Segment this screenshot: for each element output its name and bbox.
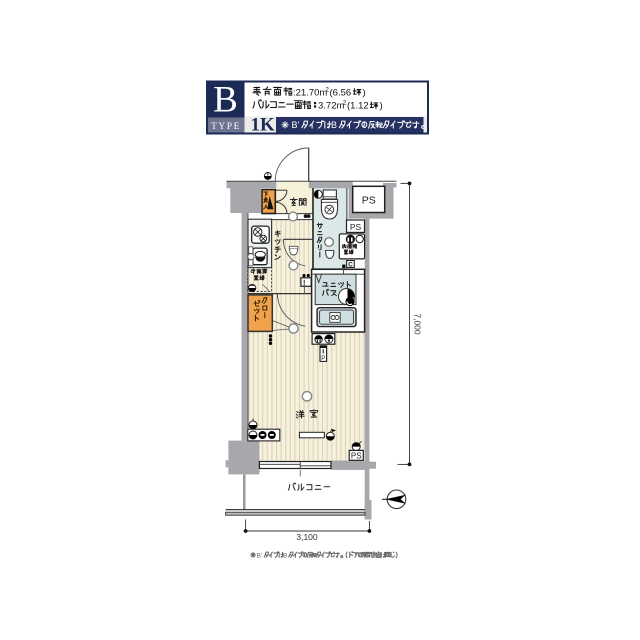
svg-text:3,100: 3,100 [296, 532, 318, 542]
svg-text:B': B' [292, 120, 300, 130]
svg-text:C: C [348, 262, 353, 269]
svg-text:P: P [321, 356, 325, 362]
svg-text::21.70m: :21.70m [293, 87, 327, 98]
svg-text:PS: PS [351, 451, 362, 460]
svg-text:PS: PS [350, 222, 362, 232]
svg-text:B: B [213, 80, 238, 121]
svg-text:7,000: 7,000 [413, 313, 423, 335]
svg-text:B': B' [257, 553, 263, 560]
svg-text:(1.12: (1.12 [347, 101, 369, 112]
svg-text:TYPE: TYPE [211, 122, 241, 132]
svg-text:1K: 1K [251, 114, 276, 135]
svg-text:3.72m: 3.72m [318, 101, 344, 112]
svg-text:B: B [331, 120, 337, 130]
svg-text:B: B [283, 553, 287, 560]
svg-text:): ) [380, 101, 383, 112]
svg-text:PS: PS [362, 195, 376, 207]
svg-text:(6.56: (6.56 [330, 87, 352, 98]
svg-text:): ) [363, 87, 366, 98]
